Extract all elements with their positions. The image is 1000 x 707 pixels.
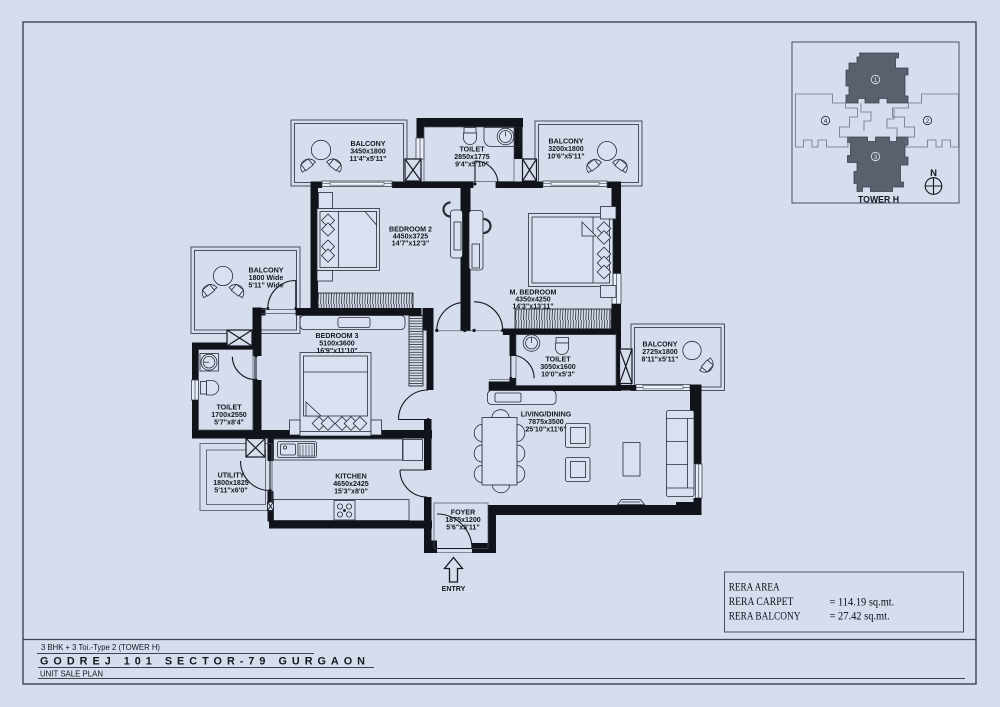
- svg-text:14'7"x12'3": 14'7"x12'3": [392, 240, 430, 248]
- svg-text:10'0"x5'3": 10'0"x5'3": [541, 371, 575, 379]
- svg-text:RERA AREA: RERA AREA: [729, 582, 781, 594]
- svg-text:RERA CARPET: RERA CARPET: [729, 596, 794, 608]
- svg-text:10'6"x5'11": 10'6"x5'11": [547, 153, 584, 161]
- svg-text:TOWER H: TOWER H: [858, 195, 899, 206]
- svg-text:9'4"x5'10": 9'4"x5'10": [455, 161, 489, 169]
- svg-text:8'11"x5'11": 8'11"x5'11": [642, 356, 679, 364]
- svg-text:GODREJ 101 SECTOR-79 GURGAON: GODREJ 101 SECTOR-79 GURGAON: [40, 656, 370, 668]
- svg-text:16'9"x11'10": 16'9"x11'10": [316, 347, 357, 355]
- svg-text:ENTRY: ENTRY: [442, 585, 466, 593]
- svg-text:11'4"x5'11": 11'4"x5'11": [350, 155, 387, 163]
- svg-text:RERA BALCONY: RERA BALCONY: [729, 611, 801, 623]
- svg-text:15'3"x8'0": 15'3"x8'0": [334, 488, 368, 496]
- svg-text:14'3"x13'11": 14'3"x13'11": [512, 303, 553, 311]
- svg-text:= 114.19 sq.mt.: = 114.19 sq.mt.: [830, 596, 895, 608]
- svg-text:5'7"x8'4": 5'7"x8'4": [214, 419, 244, 427]
- svg-text:25'10"x11'6": 25'10"x11'6": [525, 426, 566, 434]
- svg-text:5'6"x3'11": 5'6"x3'11": [446, 524, 479, 532]
- svg-text:3 BHK + 3 Toi.-Type 2 (TOWER H: 3 BHK + 3 Toi.-Type 2 (TOWER H): [41, 643, 160, 652]
- svg-text:5'11" Wide: 5'11" Wide: [248, 282, 283, 290]
- svg-text:UNIT SALE PLAN: UNIT SALE PLAN: [40, 670, 103, 679]
- svg-text:= 27.42 sq.mt.: = 27.42 sq.mt.: [830, 611, 890, 623]
- svg-text:5'11"x6'0": 5'11"x6'0": [214, 487, 247, 495]
